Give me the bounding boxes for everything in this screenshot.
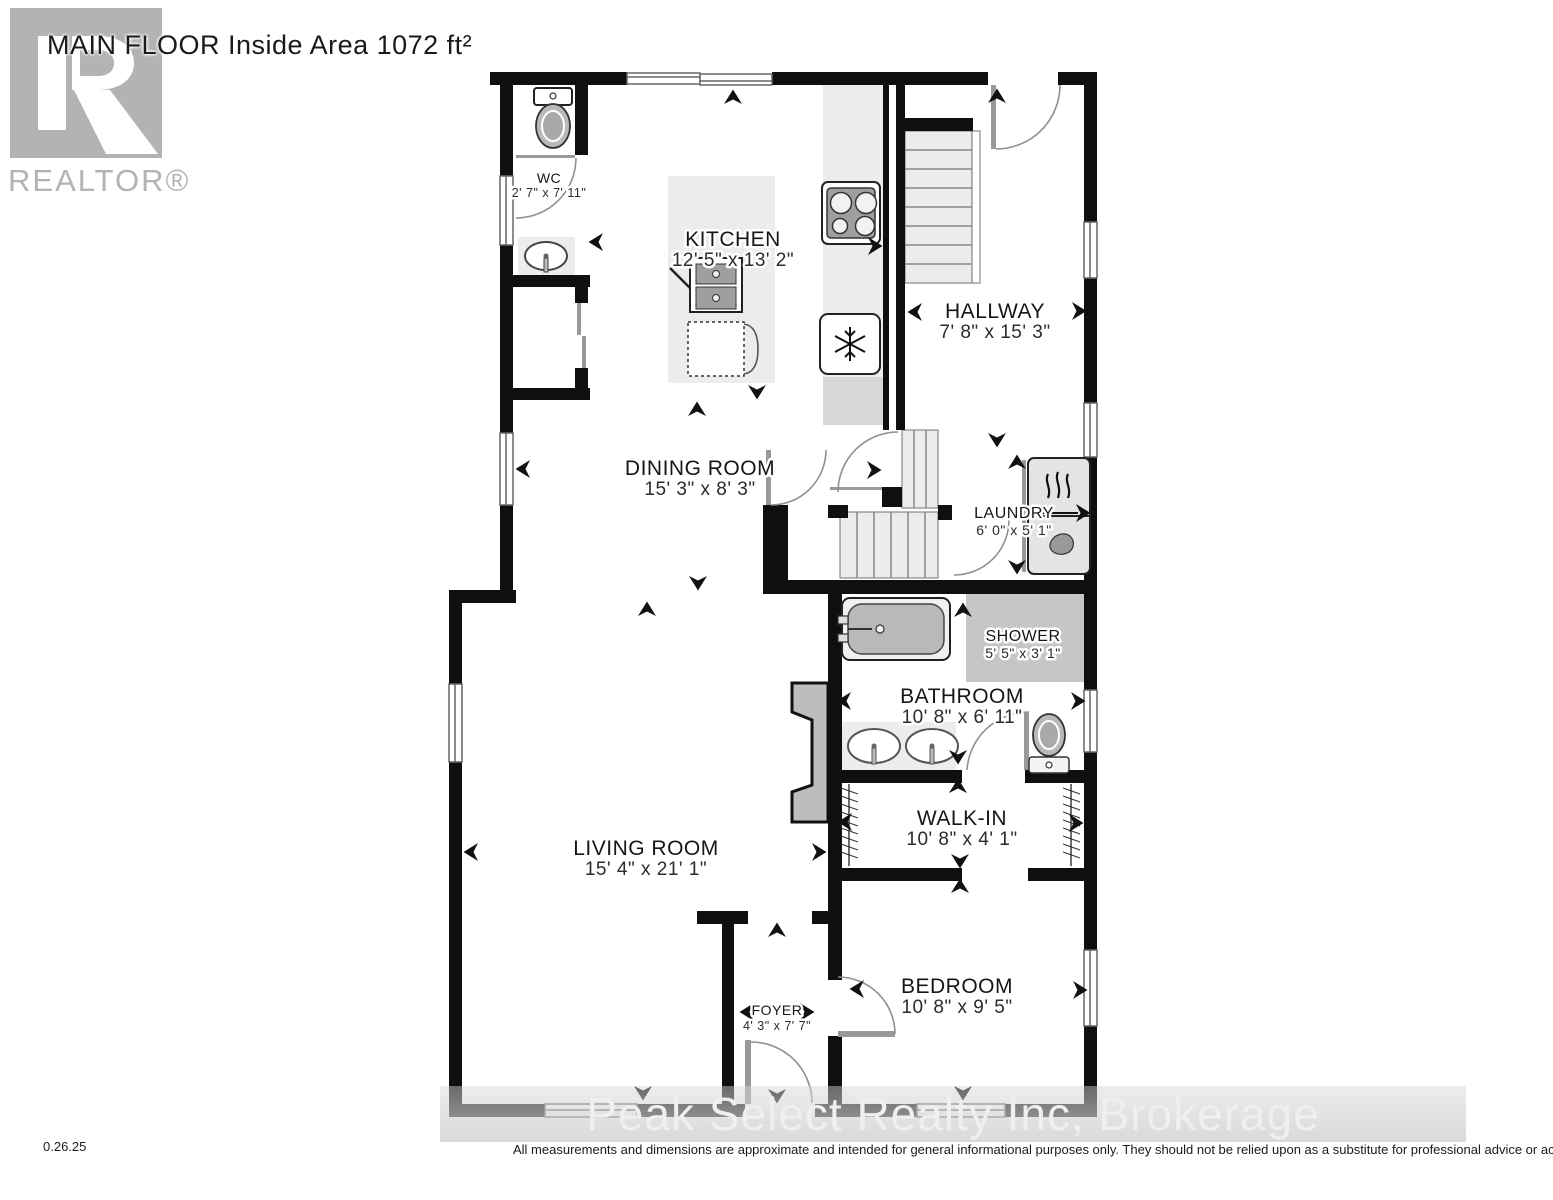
window (627, 73, 700, 84)
room-label-wc: WC (537, 170, 561, 186)
window (500, 433, 513, 505)
watermark-band: Peak Select Realty Inc, Brokerage (440, 1086, 1466, 1142)
room-label-shower: SHOWER (986, 628, 1061, 645)
room-label-living: LIVING ROOM (573, 837, 719, 860)
room-label-bathroom: BATHROOM (900, 685, 1024, 708)
stairs-hallway (905, 131, 980, 283)
fridge (820, 314, 880, 374)
room-dims-living: 15' 4" x 21' 1" (585, 859, 707, 880)
floor-plan-drawing: WC 2' 7" x 7' 11" KITCHEN 12' 5" x 13' 2… (0, 0, 1553, 1200)
page-title: MAIN FLOOR Inside Area 1072 ft² (47, 30, 472, 61)
window (1084, 222, 1097, 278)
room-label-bedroom: BEDROOM (901, 975, 1013, 998)
room-label-hallway: HALLWAY (945, 300, 1045, 323)
room-dims-bedroom: 10' 8" x 9' 5" (901, 997, 1012, 1018)
stove (822, 182, 880, 244)
room-dims-hallway: 7' 8" x 15' 3" (939, 322, 1050, 343)
room-dims-wc: 2' 7" x 7' 11" (512, 186, 587, 200)
window (449, 684, 462, 762)
window (1084, 950, 1097, 1026)
watermark-text: Peak Select Realty Inc, Brokerage (586, 1087, 1320, 1141)
room-dims-bathroom: 10' 8" x 6' 11" (902, 707, 1023, 728)
room-label-walkin: WALK-IN (917, 807, 1007, 830)
room-label-dining: DINING ROOM (625, 457, 775, 480)
wc-door-header (516, 155, 575, 158)
window (1084, 690, 1097, 752)
bathtub (838, 598, 950, 660)
room-label-kitchen: KITCHEN (685, 228, 781, 251)
room-dims-walkin: 10' 8" x 4' 1" (906, 829, 1017, 850)
room-dims-laundry: 6' 0" x 5' 1" (976, 522, 1052, 538)
room-dims-shower: 5' 5" x 3' 1" (985, 645, 1061, 661)
floor-plan-page: REALTOR® MAIN FLOOR Inside Area 1072 ft² (0, 0, 1553, 1200)
room-dims-kitchen: 12' 5" x 13' 2" (672, 250, 794, 271)
entry-door-hallway (991, 85, 1060, 149)
room-label-foyer: FOYER (752, 1002, 803, 1018)
footer-date: 0.26.25 (43, 1139, 86, 1154)
footer-disclaimer: All measurements and dimensions are appr… (513, 1142, 1513, 1157)
chimney (792, 683, 828, 822)
window (700, 74, 772, 85)
bedroom-door (838, 977, 895, 1037)
window (1084, 403, 1097, 457)
room-dims-dining: 15' 3" x 8' 3" (644, 479, 755, 500)
room-dims-foyer: 4' 3" x 7' 7" (743, 1019, 811, 1033)
wc-toilet (534, 88, 572, 148)
closet-sliding-door (577, 303, 586, 368)
room-label-laundry: LAUNDRY (974, 505, 1054, 522)
bathroom-toilet (1029, 714, 1069, 773)
